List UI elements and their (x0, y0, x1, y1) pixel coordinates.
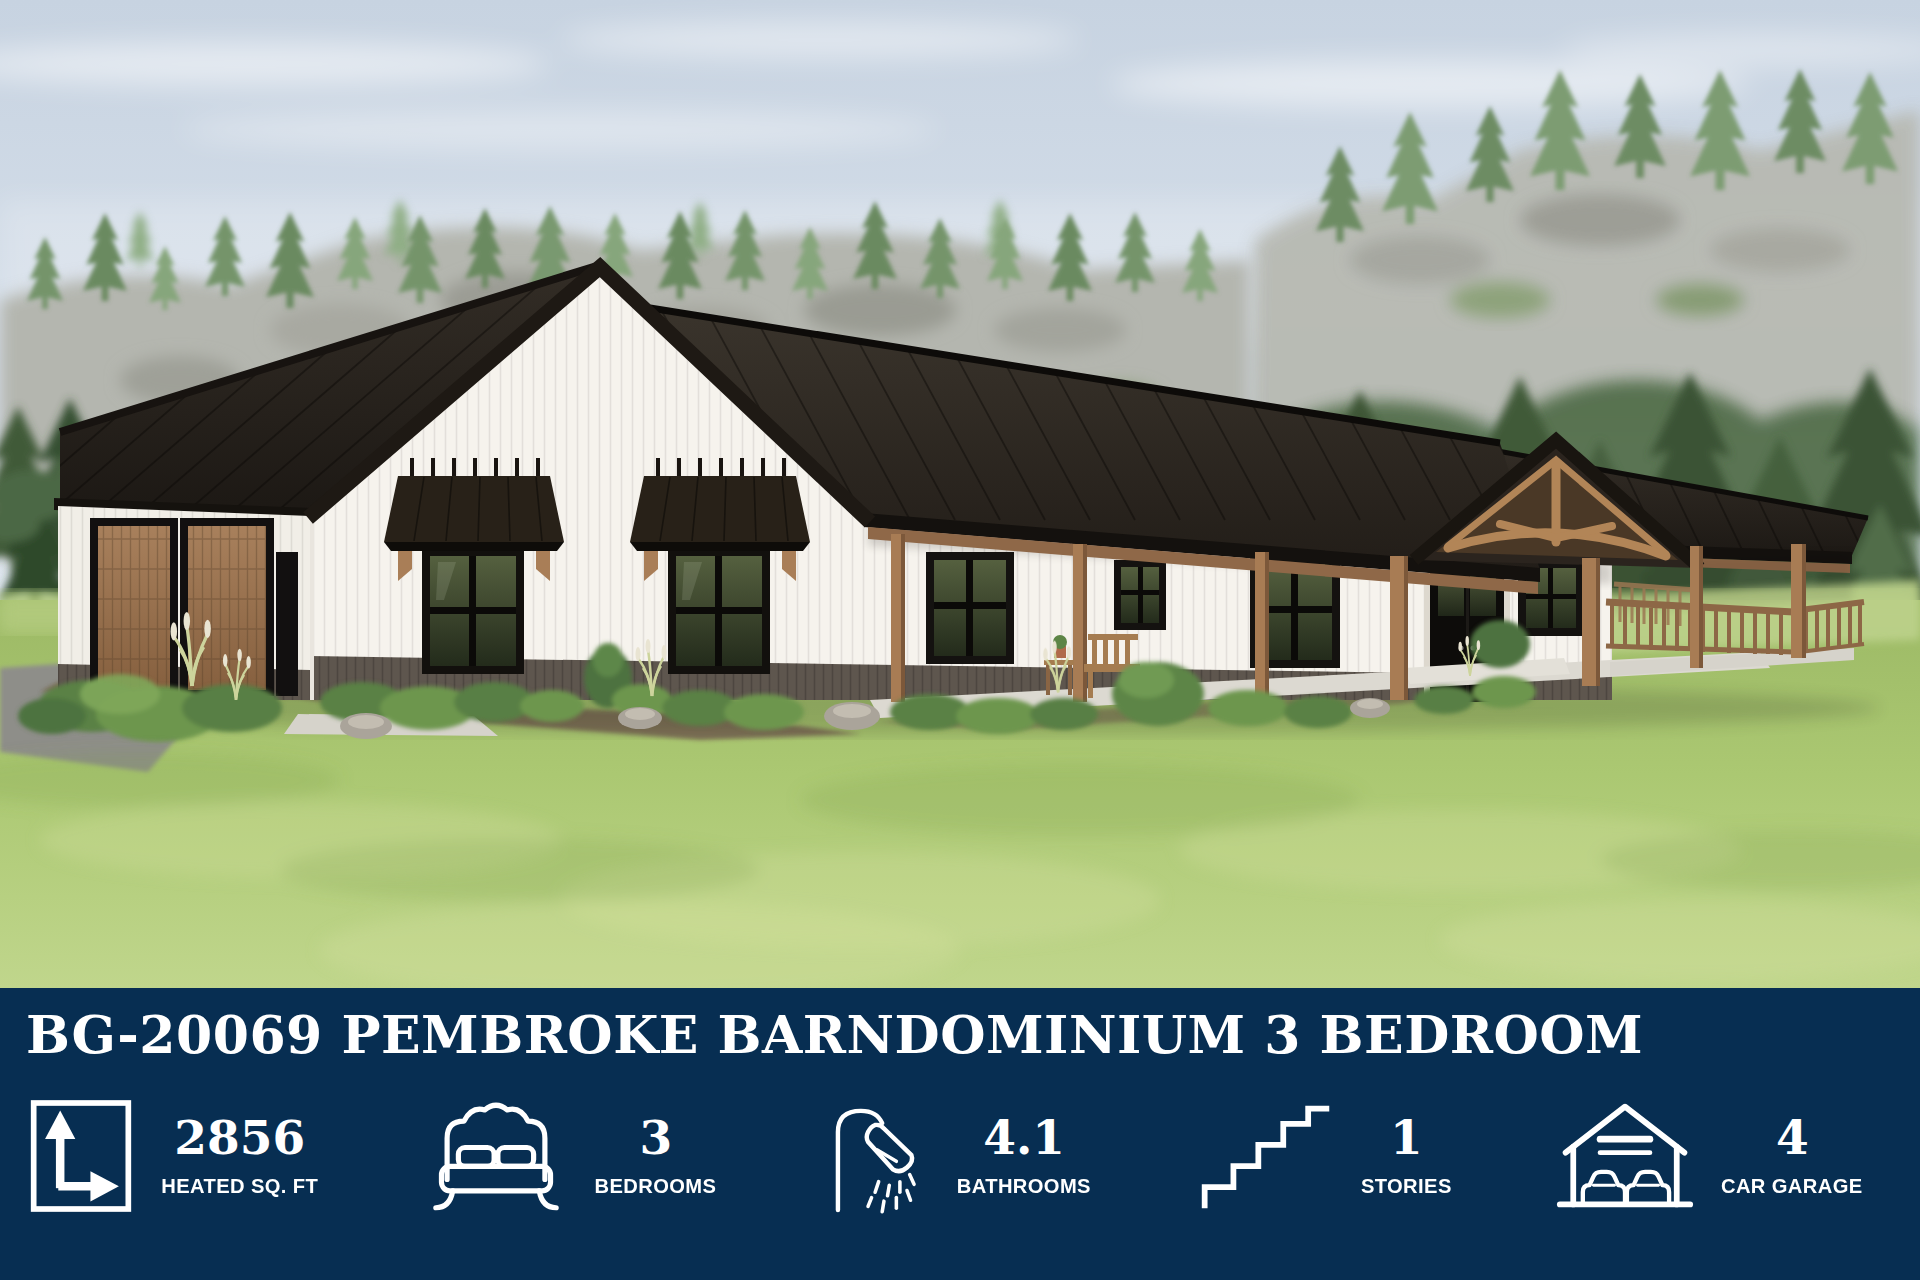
stat-car-garage: 4 CAR GARAGE (1556, 1095, 1866, 1216)
gable-window-1 (422, 548, 524, 674)
stat-value: 4.1 (983, 1114, 1065, 1161)
square-footage-icon (28, 1097, 134, 1215)
plan-marketing-image: BG-20069 PEMBROKE BARNDOMINIUM 3 BEDROOM… (0, 0, 1920, 1280)
stat-bedrooms: 3 BEDROOMS (424, 1093, 719, 1219)
garage-side-panel (276, 552, 298, 696)
stat-label: HEATED SQ. FT (161, 1174, 318, 1198)
stat-value: 3 (640, 1114, 673, 1161)
plan-title: BG-20069 PEMBROKE BARNDOMINIUM 3 BEDROOM (26, 1008, 1876, 1063)
stat-bathrooms: 4.1 BATHROOMS (822, 1096, 1094, 1216)
stat-label: CAR GARAGE (1721, 1174, 1863, 1198)
info-banner: BG-20069 PEMBROKE BARNDOMINIUM 3 BEDROOM… (0, 988, 1920, 1280)
porch-window-1 (926, 552, 1014, 664)
exterior-rendering (0, 0, 1920, 988)
stat-label: BATHROOMS (957, 1174, 1091, 1198)
stat-stories: 1 STORIES (1197, 1097, 1454, 1214)
stat-label: BEDROOMS (595, 1174, 717, 1198)
stats-row: 2856 HEATED SQ. FT 3 BEDROOMS (26, 1093, 1876, 1219)
stat-label: STORIES (1361, 1174, 1452, 1198)
stat-value: 4 (1776, 1114, 1809, 1161)
garage-icon (1556, 1095, 1694, 1216)
porch-window-2 (1114, 560, 1166, 630)
stat-value: 2856 (174, 1114, 305, 1161)
exterior-rendering-svg (0, 0, 1920, 988)
gable-window-2 (668, 548, 770, 674)
bed-icon (424, 1093, 568, 1219)
shower-icon (822, 1096, 930, 1216)
stat-heated-sqft: 2856 HEATED SQ. FT (28, 1097, 321, 1215)
stat-value: 1 (1390, 1114, 1423, 1161)
stairs-icon (1197, 1097, 1335, 1214)
